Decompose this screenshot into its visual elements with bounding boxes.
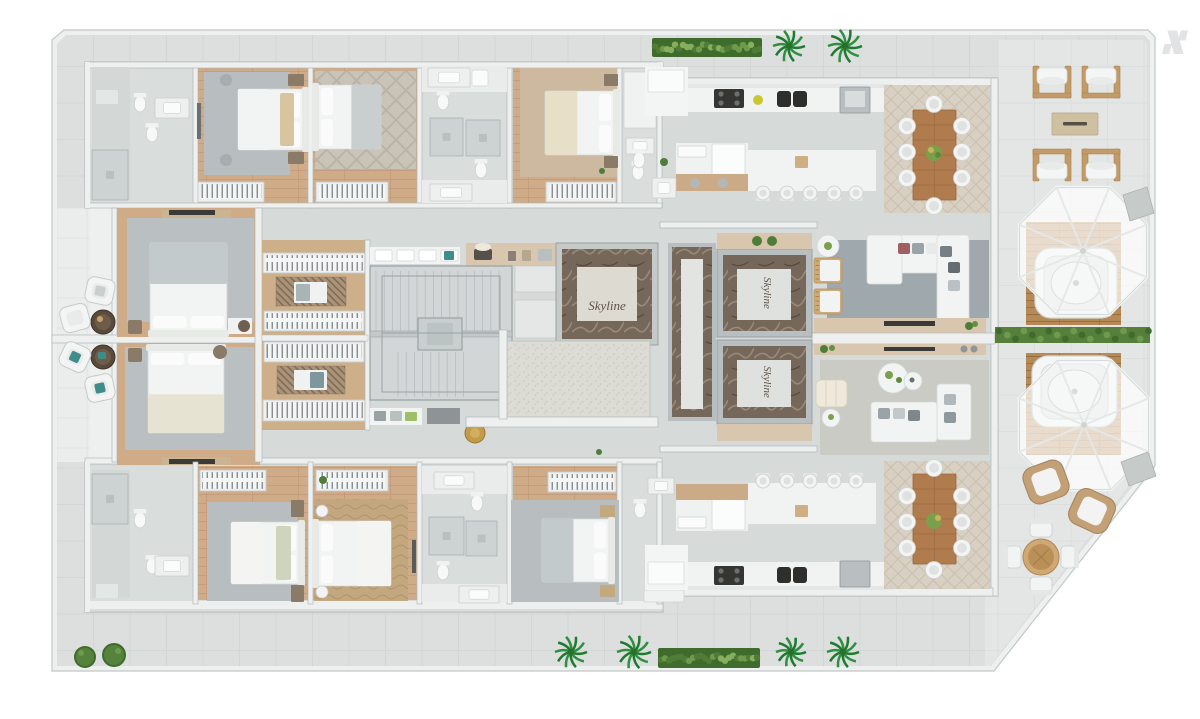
svg-text:Skyline: Skyline [588,298,626,313]
svg-text:Skyline: Skyline [761,366,773,398]
svg-text:Skyline: Skyline [761,277,773,309]
